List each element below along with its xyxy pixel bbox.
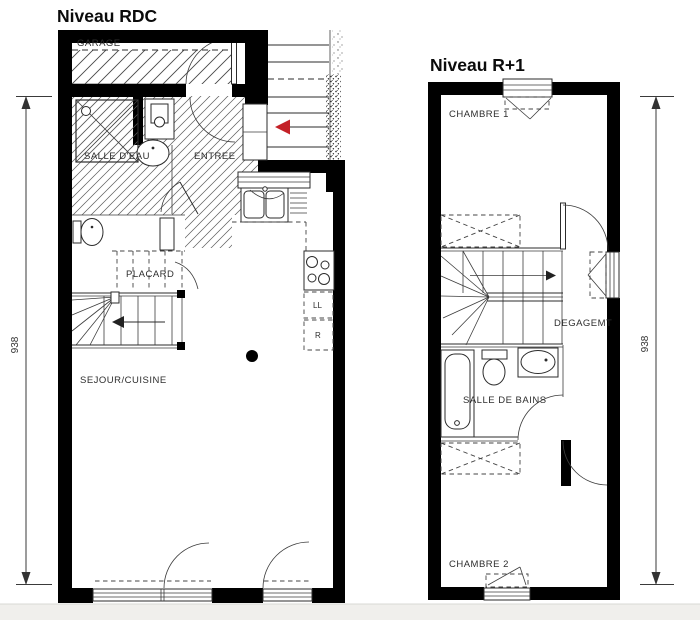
placard-door-arc [175,262,198,289]
washbasin-unit [145,99,174,139]
roof-window-lower [441,443,520,474]
sejour-door-right-arc [263,542,309,588]
r1-title: Niveau R+1 [430,55,525,75]
sejour-cuisine-label: SEJOUR/CUISINE [80,375,167,386]
r1-walls [428,82,620,600]
roof-window-upper [441,215,520,247]
fridge-label: R [315,331,321,340]
rdc-stairs [72,290,185,350]
drainer [290,193,307,213]
toilet [482,350,507,385]
garage-floor-hatch [72,50,232,84]
chambre1-label: CHAMBRE 1 [449,109,509,120]
degagement-label: DEGAGEMT [554,318,612,329]
chambre1-door-leaf [561,203,566,249]
rdc-title: Niveau RDC [57,6,158,26]
bathtub [441,350,474,437]
chambre2-window [484,567,530,600]
floor-plan-drawing: Niveau RDC [0,0,700,620]
dimension-left-value: 938 [10,336,21,353]
exterior-ground-stipple [332,30,344,74]
washing-machine-label: LL [313,301,322,310]
r1-stairs [441,248,563,347]
salle-de-bains [441,345,563,441]
cooktop [304,251,334,290]
plan-r1: Niveau R+1 [428,55,620,600]
entree-label: ENTREE [194,151,236,162]
salle-de-bains-label: SALLE DE BAINS [463,395,547,406]
dimension-right-value: 938 [640,335,651,352]
stair-up-arrow [546,271,556,281]
garage-label: GARAGE [77,38,121,49]
basin [518,348,558,377]
rdc-bottom-openings [93,542,312,601]
wc-under-stairs [73,219,103,246]
dimension-right: 938 [640,96,674,585]
sejour-window [93,589,212,601]
floor-plan-page: Niveau RDC [0,0,700,620]
sejour-door-right [263,589,312,601]
chambre1-door-arc [563,205,608,250]
footer-band [0,604,700,620]
salle-deau-label: SALLE D'EAU [84,151,150,162]
stair-down-arrow [112,316,124,328]
stair-side-wall-stipple [326,74,341,168]
chambre2-label: CHAMBRE 2 [449,559,509,570]
plan-rdc: Niveau RDC [57,6,345,603]
kitchen-sink [241,187,288,222]
dimension-left: 938 [10,96,52,585]
placard-label: PLACARD [126,269,174,280]
chambre1-window [503,79,552,119]
degagement-window [588,252,619,298]
center-point-dot [246,350,258,362]
